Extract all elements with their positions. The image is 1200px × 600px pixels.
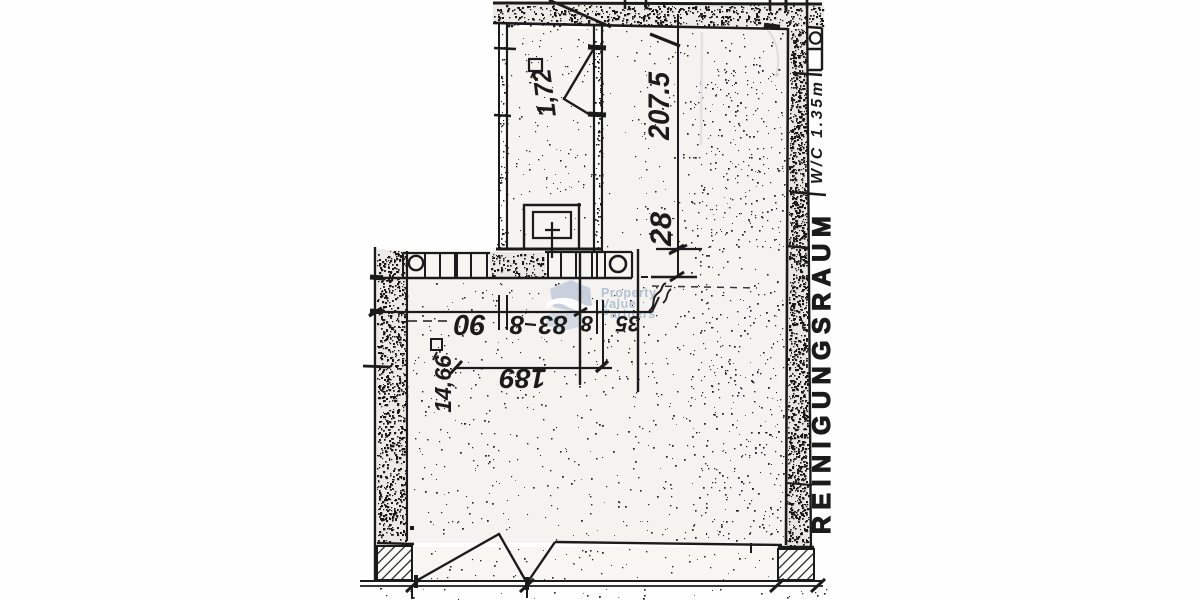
svg-text:8: 8	[509, 310, 524, 340]
svg-text:83: 83	[538, 310, 567, 340]
svg-text:REINIGUNGSRAUM: REINIGUNGSRAUM	[808, 210, 836, 534]
svg-text:35: 35	[615, 311, 640, 336]
svg-text:8: 8	[580, 311, 593, 336]
svg-text:90: 90	[454, 308, 486, 340]
svg-text:28: 28	[645, 212, 678, 247]
svg-text:14,66: 14,66	[430, 355, 456, 413]
svg-text:207.5: 207.5	[643, 71, 676, 141]
svg-text:189: 189	[499, 363, 546, 394]
